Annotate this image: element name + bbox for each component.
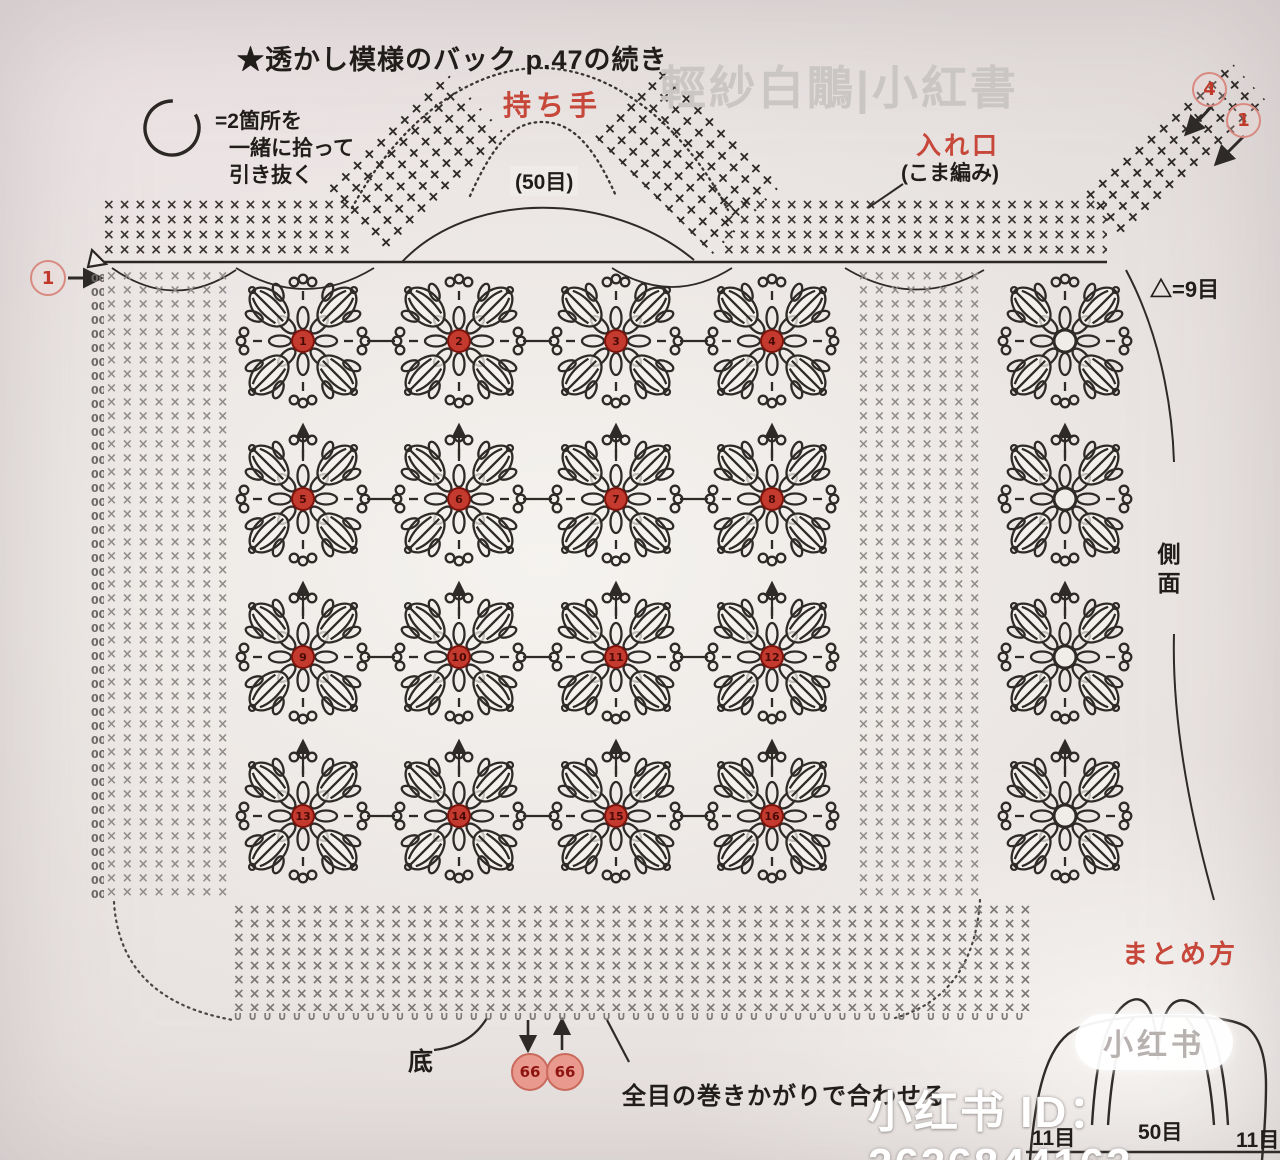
svg-text:2: 2 <box>455 335 463 348</box>
top-watermark: 輕紗白鷳|小紅書 <box>660 52 1019 118</box>
legend-line-2: 一緒に拾って <box>229 135 354 162</box>
watermark-pill: 小红书 <box>1075 1014 1233 1070</box>
triangle-eq-label: △=9目 <box>1150 272 1219 304</box>
side-flower-motif <box>995 271 1136 412</box>
svg-text:3: 3 <box>612 335 620 348</box>
flower-motif: 4 <box>702 271 843 412</box>
svg-text:7: 7 <box>612 493 620 506</box>
svg-text:15: 15 <box>608 810 623 823</box>
bottom-label: 底 <box>408 1042 433 1078</box>
svg-text:10: 10 <box>451 651 467 664</box>
motif-layer: 12345678910111213141516 <box>0 0 1280 1160</box>
seam-circled-66-b: 66 <box>546 1053 584 1091</box>
flower-motif: 3 <box>546 271 687 412</box>
handle-label: 持ち手 <box>503 84 602 124</box>
legend-line-1: =2箇所を <box>215 108 302 135</box>
circled-number-start: 1 <box>30 260 66 296</box>
matome-label: まとめ方 <box>1122 934 1238 971</box>
svg-text:12: 12 <box>764 651 779 664</box>
svg-text:13: 13 <box>295 810 310 823</box>
svg-text:9: 9 <box>299 651 307 664</box>
seam-circled-66-a: 66 <box>511 1053 549 1091</box>
circled-number-1: 1 <box>1226 103 1261 138</box>
legend-line-3: 引き抜く <box>229 162 313 189</box>
svg-text:11: 11 <box>608 651 623 664</box>
svg-text:5: 5 <box>299 493 307 506</box>
svg-text:8: 8 <box>768 493 776 506</box>
circled-number-4: 4 <box>1192 72 1227 107</box>
flower-motif: 2 <box>389 271 530 412</box>
svg-text:1: 1 <box>299 335 307 348</box>
handle-count-label: (50目) <box>510 166 578 196</box>
entrance-sub-label: (こま編み) <box>901 157 999 187</box>
svg-text:4: 4 <box>768 335 776 348</box>
svg-text:16: 16 <box>764 810 780 823</box>
flower-motif: 1 <box>233 271 374 412</box>
page-title: ★透かし模様のバック p.47の続き <box>237 38 668 77</box>
svg-text:6: 6 <box>455 493 463 506</box>
svg-text:14: 14 <box>451 810 467 823</box>
watermark-id: 小红书 ID：2636844163 <box>868 1076 1280 1160</box>
crochet-chart-page: ×××××××××××××××××××× ×××××××××××××××××××… <box>0 0 1280 1160</box>
side-label: 側面 <box>1150 542 1184 600</box>
